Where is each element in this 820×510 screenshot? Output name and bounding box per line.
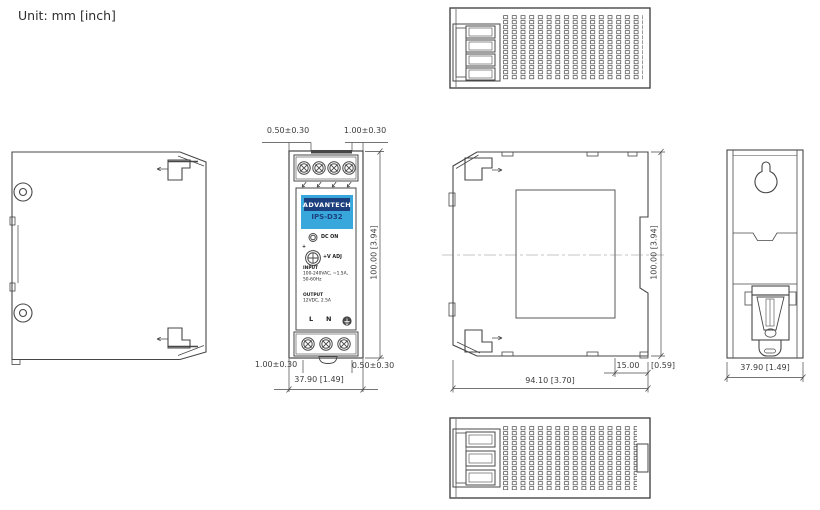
- clip-arrow-icon: [492, 168, 502, 171]
- left-side-view-art: [10, 152, 206, 365]
- wire-arrow-icon: [302, 182, 306, 187]
- brand-text: ADVANTECH: [303, 201, 351, 209]
- voltage-adjust-pot-icon: [306, 251, 321, 266]
- v-adj-label: +V ADJ: [323, 254, 342, 259]
- unit-label: Unit: mm [inch]: [18, 8, 116, 23]
- mounting-hole-bottom: [14, 304, 32, 322]
- advantech-logo: ADVANTECH: [304, 198, 350, 211]
- mounting-clip-top: [157, 160, 198, 180]
- rail-bracket: [637, 444, 648, 472]
- line-art: [0, 0, 820, 510]
- dim-front-top-left: 0.50±0.30: [265, 126, 311, 135]
- adj-plus-label: +: [302, 244, 306, 249]
- screw-icon: [338, 338, 350, 350]
- screw-icon: [313, 162, 325, 174]
- dc-on-led-icon: [309, 234, 317, 242]
- bottom-terminal-block: [453, 429, 500, 487]
- keyhole-slot-icon: [755, 162, 777, 193]
- model-text: IPS-D32: [304, 213, 350, 221]
- dim-side-width: 94.10 [3.70]: [505, 376, 595, 385]
- dim-front-bottom-right: 0.50±0.30: [349, 361, 397, 370]
- mounting-clip-bottom: [157, 328, 198, 348]
- vent-grid-top: [503, 15, 643, 80]
- din-rail-clip: [745, 286, 796, 356]
- drawing-canvas: Unit: mm [inch] 0.50±0.30 1.00±0.30 100.…: [0, 0, 820, 510]
- dim-side-height: 100.00 [3.94]: [650, 221, 659, 285]
- clip-arrow-icon: [157, 337, 168, 340]
- input-line3: 50-60Hz: [303, 276, 356, 282]
- terminal-n-label: N: [326, 315, 331, 323]
- dim-front-top-right: 1.00±0.30: [341, 126, 389, 135]
- top-view-art: [450, 8, 650, 88]
- dim-front-bottom-left: 1.00±0.30: [252, 360, 300, 369]
- dim-front-height: 100.00 [3.94]: [370, 221, 379, 285]
- screw-icon: [343, 162, 355, 174]
- wire-arrow-icon: [317, 182, 321, 187]
- side-clip-top: [465, 158, 502, 180]
- top-terminal-block: [453, 24, 500, 81]
- side-view-art: [442, 149, 665, 393]
- screw-icon: [302, 338, 314, 350]
- wire-arrow-icon: [332, 182, 336, 187]
- dim-back-width: 37.90 [1.49]: [734, 363, 796, 372]
- product-label: ADVANTECH IPS-D32: [301, 195, 353, 229]
- dim-side-din-depth-inch: [0.59]: [651, 361, 675, 370]
- dim-front-width: 37.90 [1.49]: [288, 375, 350, 384]
- back-view-art: [725, 150, 806, 382]
- bottom-view-art: [450, 418, 650, 498]
- output-line2: 12VDC, 2.5A: [303, 298, 356, 304]
- input-spec-block: INPUT 100-240VAC, ~1.5A, 50-60Hz: [303, 265, 356, 282]
- wire-arrow-icon: [347, 182, 351, 187]
- screw-icon: [298, 162, 310, 174]
- terminal-l-label: L: [309, 315, 313, 323]
- front-terminal-block-bottom: [294, 332, 358, 356]
- output-spec-block: OUTPUT 12VDC, 2.5A: [303, 292, 356, 303]
- front-terminal-block-top: [294, 155, 358, 181]
- mounting-hole-top: [14, 183, 32, 201]
- dc-on-label: DC ON: [321, 234, 338, 239]
- side-label-area: [516, 190, 615, 318]
- screw-icon: [328, 162, 340, 174]
- ground-icon: [342, 316, 351, 325]
- vent-grid-bottom: [503, 426, 637, 490]
- clip-arrow-icon: [157, 167, 168, 170]
- clip-arrow-icon: [492, 336, 502, 339]
- screw-icon: [320, 338, 332, 350]
- dim-side-din-depth: 15.00: [610, 361, 646, 370]
